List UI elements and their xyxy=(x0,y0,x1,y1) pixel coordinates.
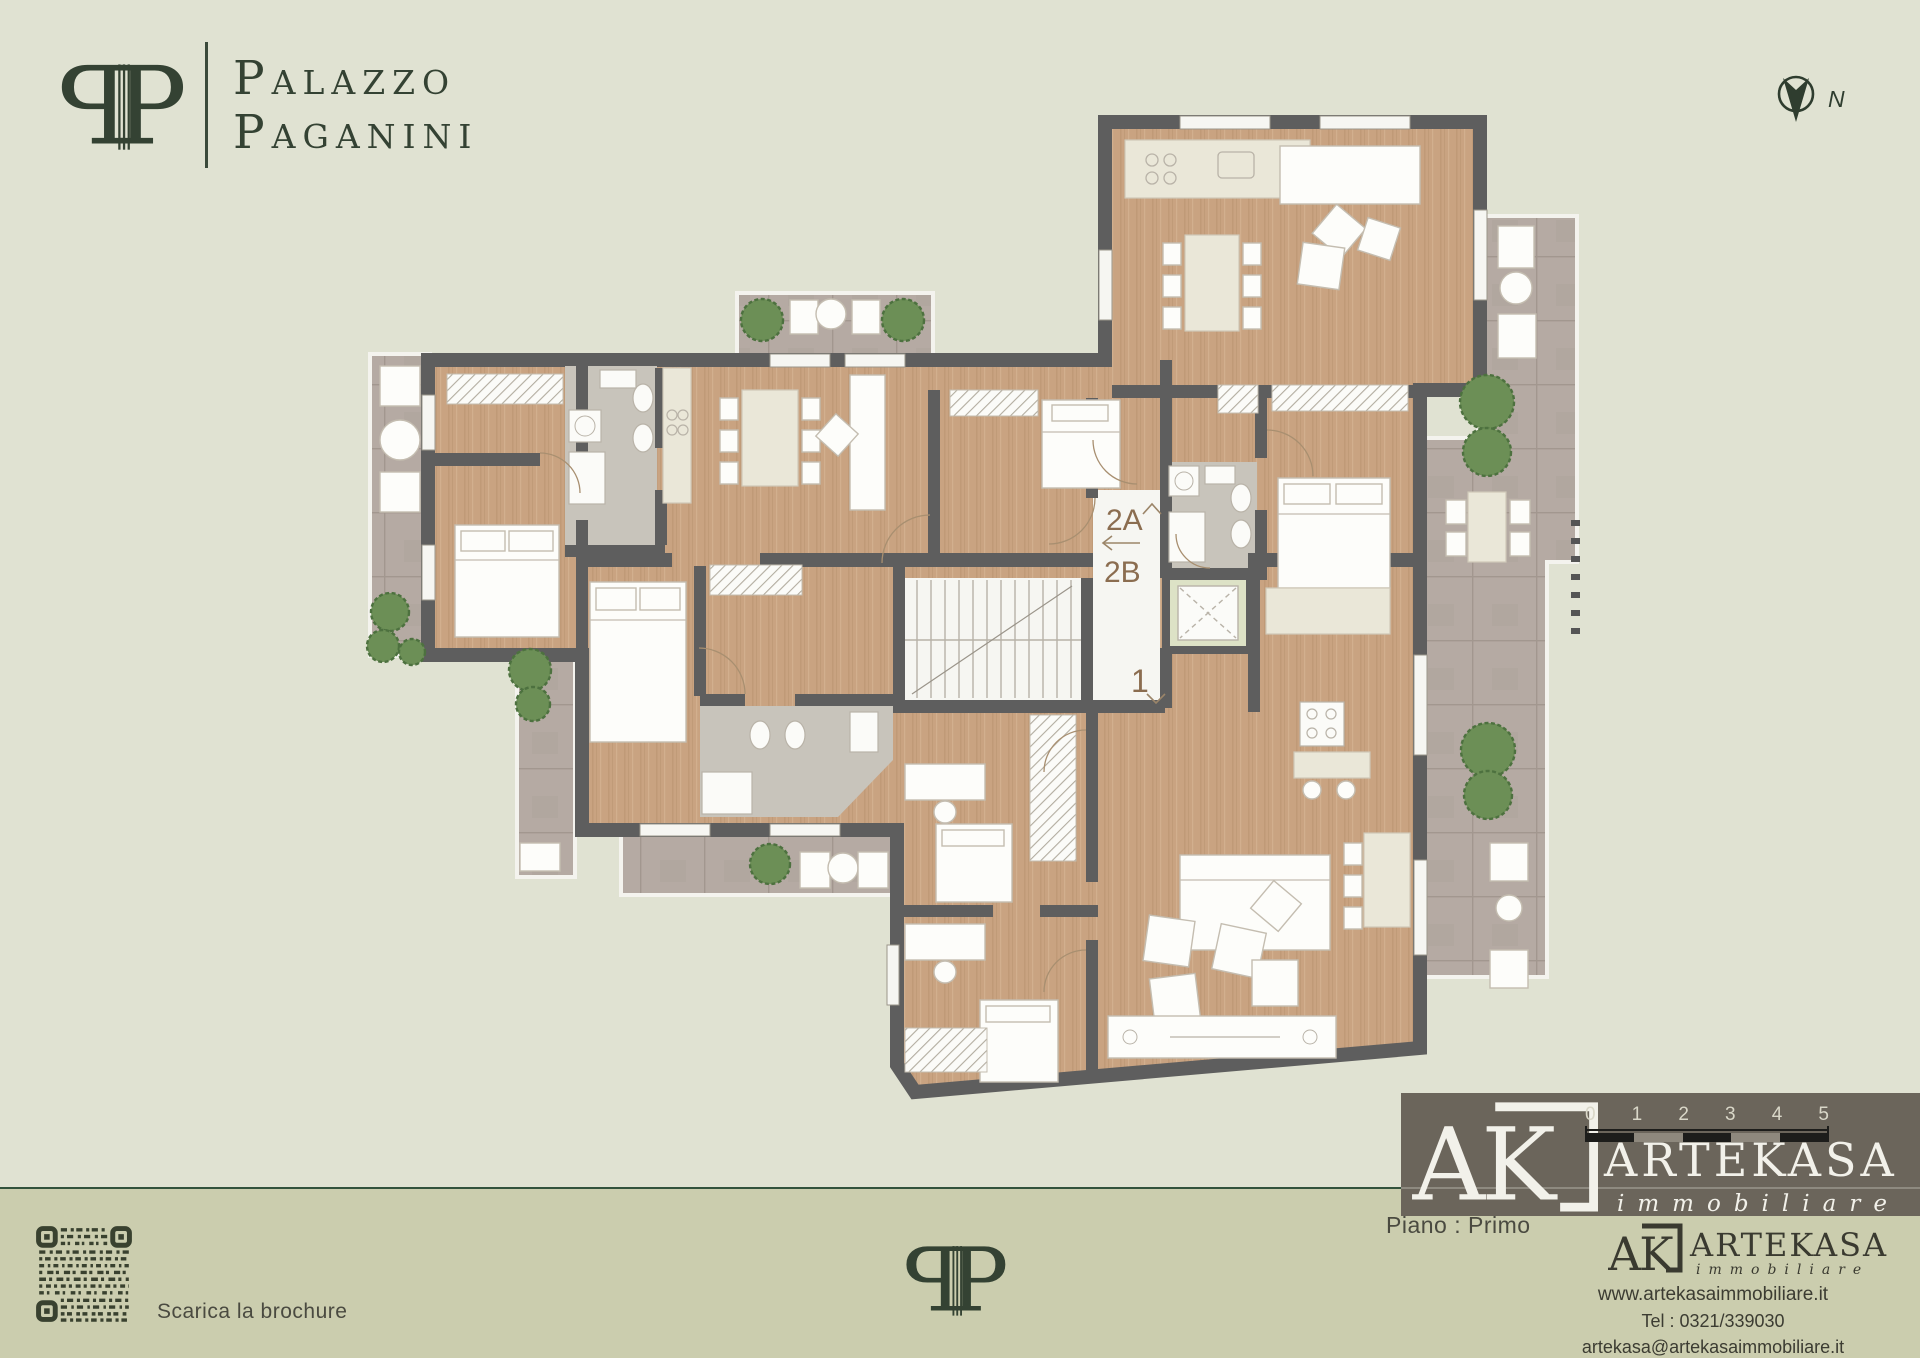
kitchen-counter-1 xyxy=(1266,588,1390,634)
scale-4: 4 xyxy=(1772,1104,1783,1126)
scale-bar-segments xyxy=(1585,1133,1829,1142)
agency-subtitle-small: immobiliare xyxy=(1696,1262,1869,1278)
agency-email: artekasa@artekasaimmobiliare.it xyxy=(1503,1337,1920,1358)
scale-5: 5 xyxy=(1818,1104,1829,1126)
kitchen-counter-2a xyxy=(663,368,691,503)
dining-table-1 xyxy=(1364,833,1410,927)
agency-logo-small: AK ARTEKASA immobiliare xyxy=(1608,1222,1920,1280)
terrace-dining-table xyxy=(1468,492,1506,562)
scale-bar-labels: 0 1 2 3 4 5 xyxy=(1585,1104,1829,1126)
bed-2a-center xyxy=(590,582,686,742)
sofa-2a xyxy=(850,375,885,510)
palazzo-paganini-monogram-footer-icon: P P xyxy=(905,1236,1011,1324)
scale-2: 2 xyxy=(1678,1104,1689,1126)
kitchen-island-1 xyxy=(1294,752,1370,778)
bed-2a-master xyxy=(455,525,559,637)
agency-logo-icon: AK xyxy=(1409,1097,1609,1215)
bed-2b-master xyxy=(1278,478,1390,588)
unit-label-1: 1 xyxy=(1131,663,1149,699)
qr-code xyxy=(33,1223,135,1325)
elevator xyxy=(1166,576,1250,650)
monogram-bars xyxy=(952,1246,961,1316)
floor-label: Piano : Primo xyxy=(1386,1212,1531,1239)
agency-phone: Tel : 0321/339030 xyxy=(1503,1311,1920,1332)
agency-logo-small-icon: AK xyxy=(1608,1222,1686,1280)
agency-website: www.artekasaimmobiliare.it xyxy=(1503,1284,1920,1306)
page: P P Palazzo Paganini N xyxy=(0,0,1920,1358)
unit-label-2b: 2B xyxy=(1104,556,1141,589)
dining-table-2a xyxy=(742,390,798,486)
agency-initials: AK xyxy=(1608,1227,1675,1280)
scale-3: 3 xyxy=(1725,1104,1736,1126)
dining-table-2b xyxy=(1185,235,1239,331)
scale-bar-ticks xyxy=(1585,1129,1829,1131)
scale-0: 0 xyxy=(1585,1104,1596,1126)
agency-name-small: ARTEKASA xyxy=(1690,1226,1888,1264)
bed-2b-small xyxy=(1042,400,1120,488)
brochure-label: Scarica la brochure xyxy=(157,1300,347,1324)
scale-1: 1 xyxy=(1632,1104,1643,1126)
sofa-2b xyxy=(1280,146,1420,204)
agency-initials: AK xyxy=(1412,1106,1558,1215)
agency-subtitle: immobiliare xyxy=(1617,1191,1900,1217)
agency-contacts: www.artekasaimmobiliare.it Tel : 0321/33… xyxy=(1503,1284,1920,1358)
unit-label-2a: 2A xyxy=(1106,504,1143,537)
scale-bar: 0 1 2 3 4 5 xyxy=(1585,1104,1829,1142)
